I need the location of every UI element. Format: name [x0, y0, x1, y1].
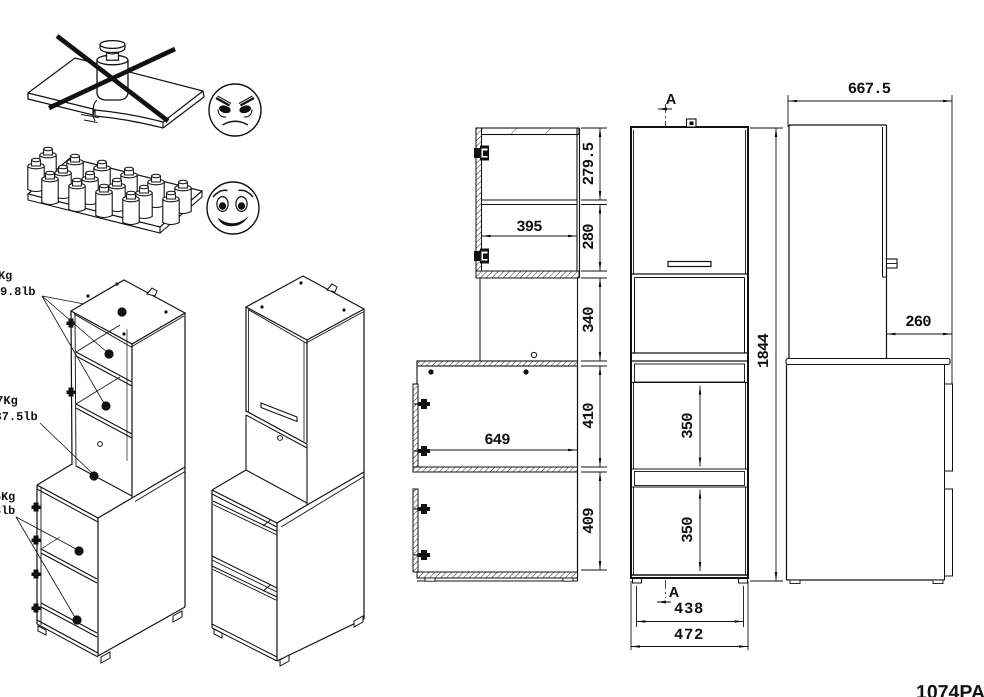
svg-text:649: 649: [484, 431, 510, 449]
svg-text:438: 438: [674, 600, 704, 618]
svg-text:5Kg: 5Kg: [0, 269, 12, 283]
svg-text:A: A: [666, 92, 677, 108]
svg-text:5Kg: 5Kg: [0, 490, 15, 504]
svg-text:1074PA2: 1074PA2: [916, 682, 984, 697]
svg-text:395: 395: [516, 218, 542, 236]
svg-text:17Kg: 17Kg: [0, 394, 18, 408]
svg-text:350: 350: [679, 413, 697, 439]
svg-text:667.5: 667.5: [848, 80, 891, 98]
svg-text:340: 340: [580, 307, 598, 333]
svg-text:1844: 1844: [755, 334, 773, 369]
svg-text:472: 472: [674, 626, 704, 644]
svg-text:409: 409: [580, 508, 598, 534]
svg-text:A: A: [669, 585, 680, 601]
svg-text:279.5: 279.5: [580, 142, 598, 185]
svg-text:39.8lb: 39.8lb: [0, 285, 35, 299]
svg-text:280: 280: [580, 224, 598, 250]
svg-text:350: 350: [679, 517, 697, 543]
svg-text:37.5lb: 37.5lb: [0, 410, 38, 424]
svg-text:410: 410: [580, 403, 598, 429]
svg-text:260: 260: [905, 313, 931, 331]
svg-text:8lb: 8lb: [0, 504, 15, 518]
